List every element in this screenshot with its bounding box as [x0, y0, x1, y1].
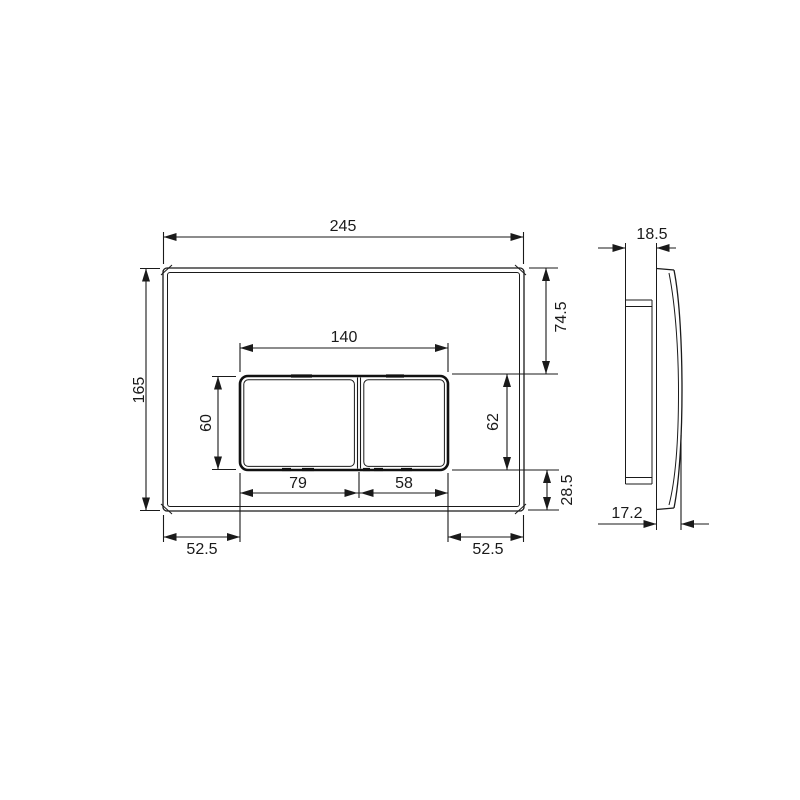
dim-label-plate-width: 245 — [330, 218, 357, 235]
dim-buttons-to-bottom: 28.5 — [528, 470, 576, 510]
dim-label-margin-right: 52.5 — [472, 541, 503, 558]
dim-side-depth-cover: 17.2 — [598, 435, 709, 530]
side-cover-profile — [657, 243, 683, 530]
technical-drawing: 245 165 140 60 62 74.5 28. — [0, 0, 800, 800]
button-right — [364, 380, 445, 467]
dim-label-button-right-height: 62 — [485, 413, 502, 431]
flush-buttons — [240, 376, 448, 470]
button-left — [244, 380, 355, 467]
dim-button-right-height: 62 — [452, 374, 559, 470]
dim-label-side-depth-cover: 17.2 — [611, 505, 642, 522]
side-back-frame — [626, 243, 653, 484]
dim-label-button-left-width: 79 — [289, 475, 307, 492]
drawing-canvas: 245 165 140 60 62 74.5 28. — [0, 0, 800, 800]
button-clip-notches — [282, 376, 412, 470]
dim-label-button-left-height: 60 — [198, 414, 215, 432]
side-cover-inner-curve — [669, 273, 679, 505]
button-group-outline — [240, 376, 448, 470]
dim-label-button-right-width: 58 — [395, 475, 413, 492]
dim-top-to-buttons: 74.5 — [529, 268, 570, 374]
side-view — [626, 243, 683, 530]
dim-margin-right: 52.5 — [448, 515, 524, 558]
dim-button-left-height: 60 — [198, 377, 236, 470]
dim-label-margin-left: 52.5 — [186, 541, 217, 558]
dim-label-buttons-group-width: 140 — [331, 329, 358, 346]
dim-side-depth-total: 18.5 — [598, 226, 676, 252]
dim-margin-left: 52.5 — [164, 515, 241, 558]
dim-label-top-to-buttons: 74.5 — [553, 301, 570, 332]
dim-label-side-depth-total: 18.5 — [636, 226, 667, 243]
dim-buttons-group-width: 140 — [240, 329, 448, 372]
dim-label-plate-height: 165 — [131, 377, 148, 404]
dim-label-buttons-to-bottom: 28.5 — [559, 474, 576, 505]
dim-plate-width: 245 — [164, 218, 524, 264]
dim-plate-height: 165 — [131, 269, 160, 511]
